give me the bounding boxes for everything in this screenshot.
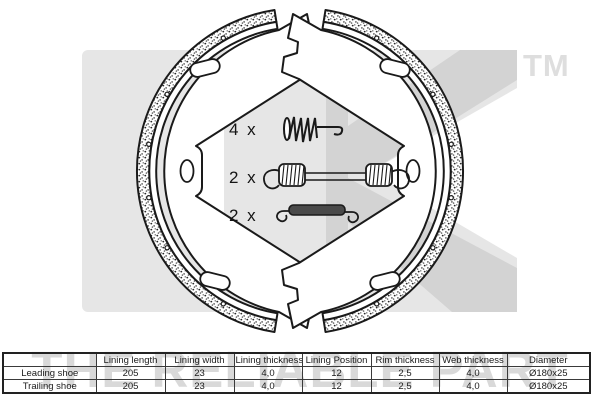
spec-cell: 2,5	[371, 367, 439, 380]
spec-cell: 12	[302, 380, 371, 394]
brake-shoe-diagram: 4 x 2 x 2 x	[0, 0, 600, 350]
spec-header-corner	[3, 353, 96, 367]
spec-cell: 23	[165, 367, 234, 380]
spec-header-row: Lining length Lining width Lining thickn…	[3, 353, 590, 367]
spec-header-diameter: Diameter	[507, 353, 590, 367]
spec-row-leading-shoe: Leading shoe 205 23 4,0 12 2,5 4,0 Ø180x…	[3, 367, 590, 380]
spec-cell: 205	[96, 380, 165, 394]
spec-header-web-thickness: Web thickness	[439, 353, 507, 367]
short-return-spring	[277, 205, 358, 222]
spec-row-label: Trailing shoe	[3, 380, 96, 394]
qty-label-short-spring: 2 x	[229, 206, 258, 225]
spec-cell: Ø180x25	[507, 367, 590, 380]
long-return-spring	[264, 164, 409, 188]
spec-header-lining-length: Lining length	[96, 353, 165, 367]
spec-cell: 23	[165, 380, 234, 394]
spec-cell: 205	[96, 367, 165, 380]
spec-cell: 2,5	[371, 380, 439, 394]
spec-row-trailing-shoe: Trailing shoe 205 23 4,0 12 2,5 4,0 Ø180…	[3, 380, 590, 394]
spec-row-label: Leading shoe	[3, 367, 96, 380]
spec-cell: 4,0	[234, 367, 302, 380]
hold-down-pin-spring	[284, 117, 342, 142]
spec-cell: 4,0	[234, 380, 302, 394]
spec-cell: 12	[302, 367, 371, 380]
product-image: TM THE RELIABLE PART	[0, 0, 600, 400]
spec-header-lining-width: Lining width	[165, 353, 234, 367]
qty-label-long-spring: 2 x	[229, 168, 258, 187]
spec-table: Lining length Lining width Lining thickn…	[2, 352, 591, 394]
spec-header-rim-thickness: Rim thickness	[371, 353, 439, 367]
web-anchor-hole	[181, 160, 194, 182]
spec-header-lining-position: Lining Position	[302, 353, 371, 367]
spec-header-lining-thickness: Lining thickness	[234, 353, 302, 367]
spec-cell: 4,0	[439, 380, 507, 394]
spec-cell: Ø180x25	[507, 380, 590, 394]
qty-label-pin-spring: 4 x	[229, 120, 258, 139]
spec-cell: 4,0	[439, 367, 507, 380]
